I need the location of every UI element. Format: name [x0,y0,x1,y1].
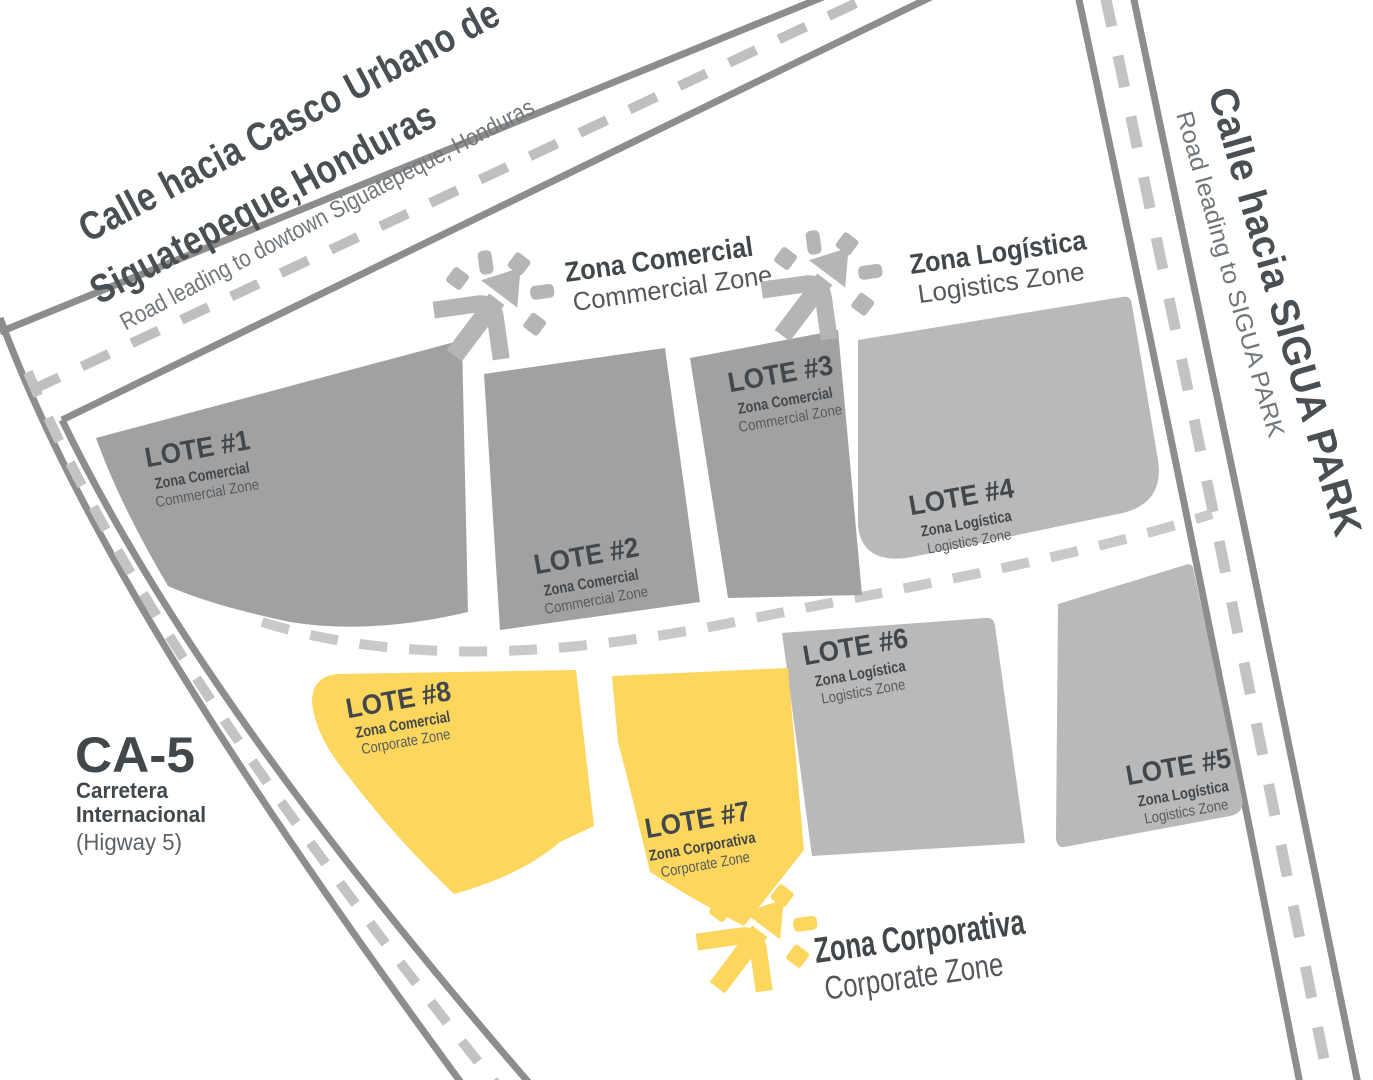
sunburst-arrow-icon [754,222,890,348]
highway-name-en: (Higway 5) [76,829,182,855]
site-plan-map: LOTE #1 Zona Comercial Commercial Zone L… [0,0,1373,1080]
lot-7-shape [612,668,804,926]
downtown-road-label: Calle hacia Casco Urbano de Siguatepeque… [55,0,551,341]
road-title: Calle hacia SIGUA PARK [1199,82,1369,541]
map-canvas: LOTE #1 Zona Comercial Commercial Zone L… [0,0,1373,1080]
legend-zona-comercial: Zona Comercial Commercial Zone [426,229,774,368]
highway-name-line2: Internacional [76,802,206,827]
highway-ca5-label: CA-5 Carretera Internacional (Higway 5) [75,727,206,855]
road-centerline [1105,0,1329,1080]
highway-code: CA-5 [75,727,195,783]
highway-name-line1: Carretera [76,778,169,803]
